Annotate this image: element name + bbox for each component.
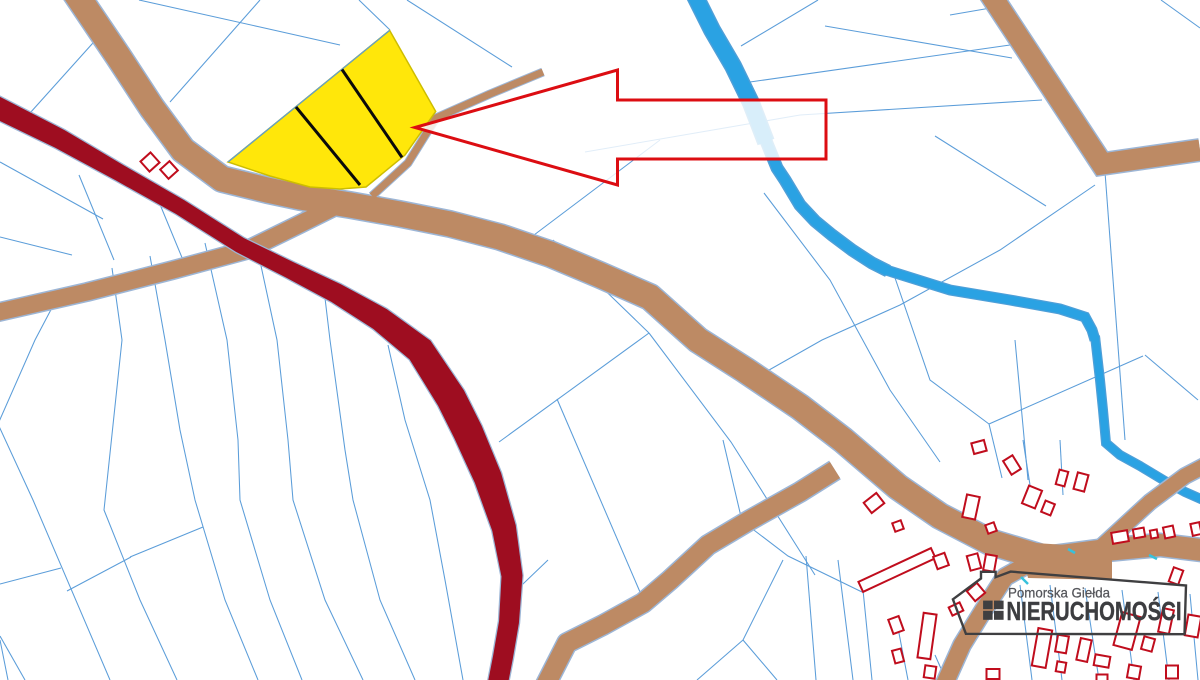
svg-text:NIERUCHOMOŚCI: NIERUCHOMOŚCI bbox=[1007, 596, 1182, 626]
